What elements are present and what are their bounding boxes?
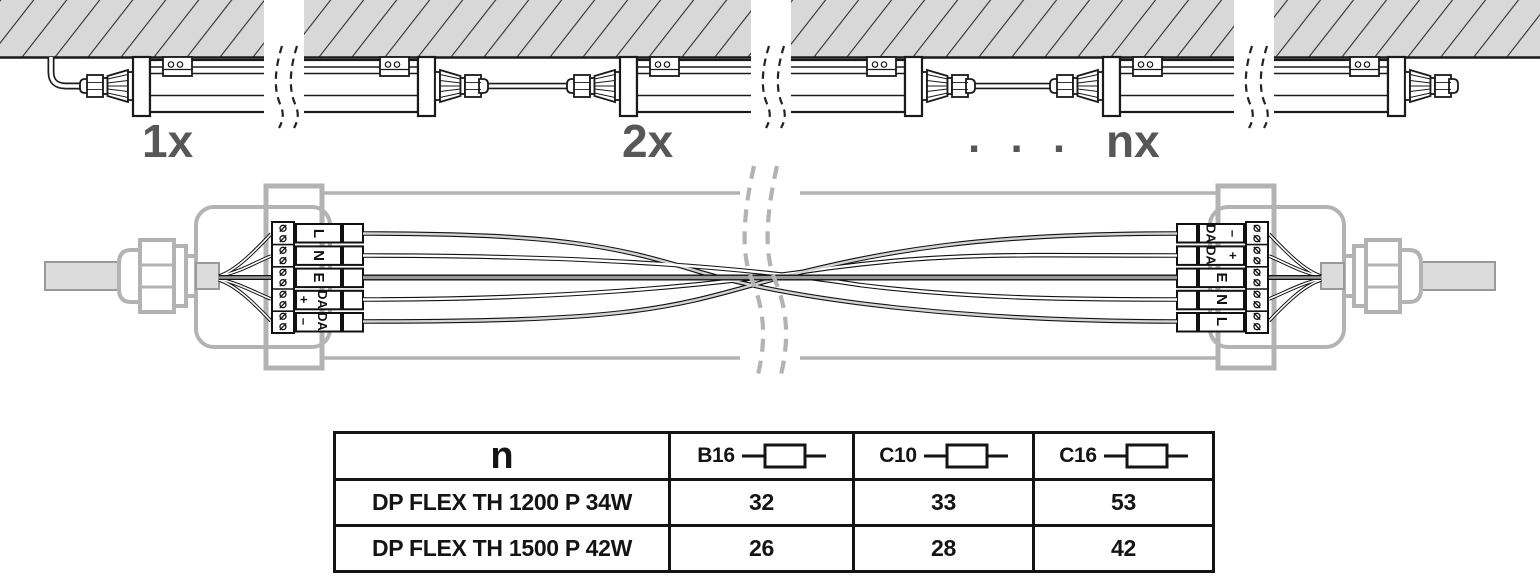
header-n: n bbox=[335, 433, 670, 480]
fuse-table: n B16 C10 C16 bbox=[333, 431, 1215, 573]
table-header-row: n B16 C10 C16 bbox=[335, 433, 1214, 480]
value-cell: 32 bbox=[670, 480, 854, 526]
luminaire-2-label: 2x bbox=[622, 115, 674, 167]
fuse-icon bbox=[1104, 441, 1188, 471]
value-cell: 33 bbox=[854, 480, 1034, 526]
model-cell: DP FLEX TH 1200 P 34W bbox=[335, 480, 670, 526]
terminal-da-plus: DA bbox=[1204, 246, 1219, 265]
model-cell: DP FLEX TH 1500 P 42W bbox=[335, 526, 670, 572]
fuse-rating-label: C16 bbox=[1059, 444, 1097, 468]
ellipsis-label: . . . bbox=[968, 113, 1074, 162]
table-row: DP FLEX TH 1500 P 42W 26 28 42 bbox=[335, 526, 1214, 572]
fuse-rating-label: B16 bbox=[697, 444, 735, 468]
terminal-n: N bbox=[1213, 294, 1230, 305]
value-cell: 53 bbox=[1034, 480, 1214, 526]
luminaire-n-label: nx bbox=[1106, 115, 1160, 167]
terminal-da-minus-sign: – bbox=[1226, 230, 1241, 237]
terminal-da-minus: DA bbox=[1204, 224, 1219, 243]
terminal-l: L bbox=[310, 229, 327, 238]
value-cell: 42 bbox=[1034, 526, 1214, 572]
value-cell: 26 bbox=[670, 526, 854, 572]
terminal-n: N bbox=[310, 250, 327, 261]
terminal-da-plus-sign: + bbox=[1226, 252, 1241, 260]
fuse-rating-label: C10 bbox=[879, 444, 917, 468]
fuse-icon bbox=[924, 441, 1008, 471]
through-wires bbox=[363, 234, 1177, 322]
terminal-da-plus: DA bbox=[315, 290, 330, 309]
terminal-da-minus-sign: – bbox=[297, 318, 312, 325]
manual-page: 1x 2x . . . nx L N E DA + DA – DA bbox=[0, 0, 1540, 584]
header-b16: B16 bbox=[670, 433, 854, 480]
value-cell: 28 bbox=[854, 526, 1034, 572]
header-n-label: n bbox=[490, 435, 513, 477]
terminal-e: E bbox=[310, 272, 327, 282]
terminal-da-minus: DA bbox=[315, 312, 330, 331]
header-c10: C10 bbox=[854, 433, 1034, 480]
terminal-l: L bbox=[1213, 317, 1230, 326]
fuse-icon bbox=[742, 441, 826, 471]
mains-supply-cable bbox=[51, 57, 82, 86]
luminaire-1-label: 1x bbox=[142, 115, 194, 167]
terminal-da-plus-sign: + bbox=[297, 296, 312, 304]
table-row: DP FLEX TH 1200 P 34W 32 33 53 bbox=[335, 480, 1214, 526]
terminal-e: E bbox=[1213, 272, 1230, 282]
header-c16: C16 bbox=[1034, 433, 1214, 480]
